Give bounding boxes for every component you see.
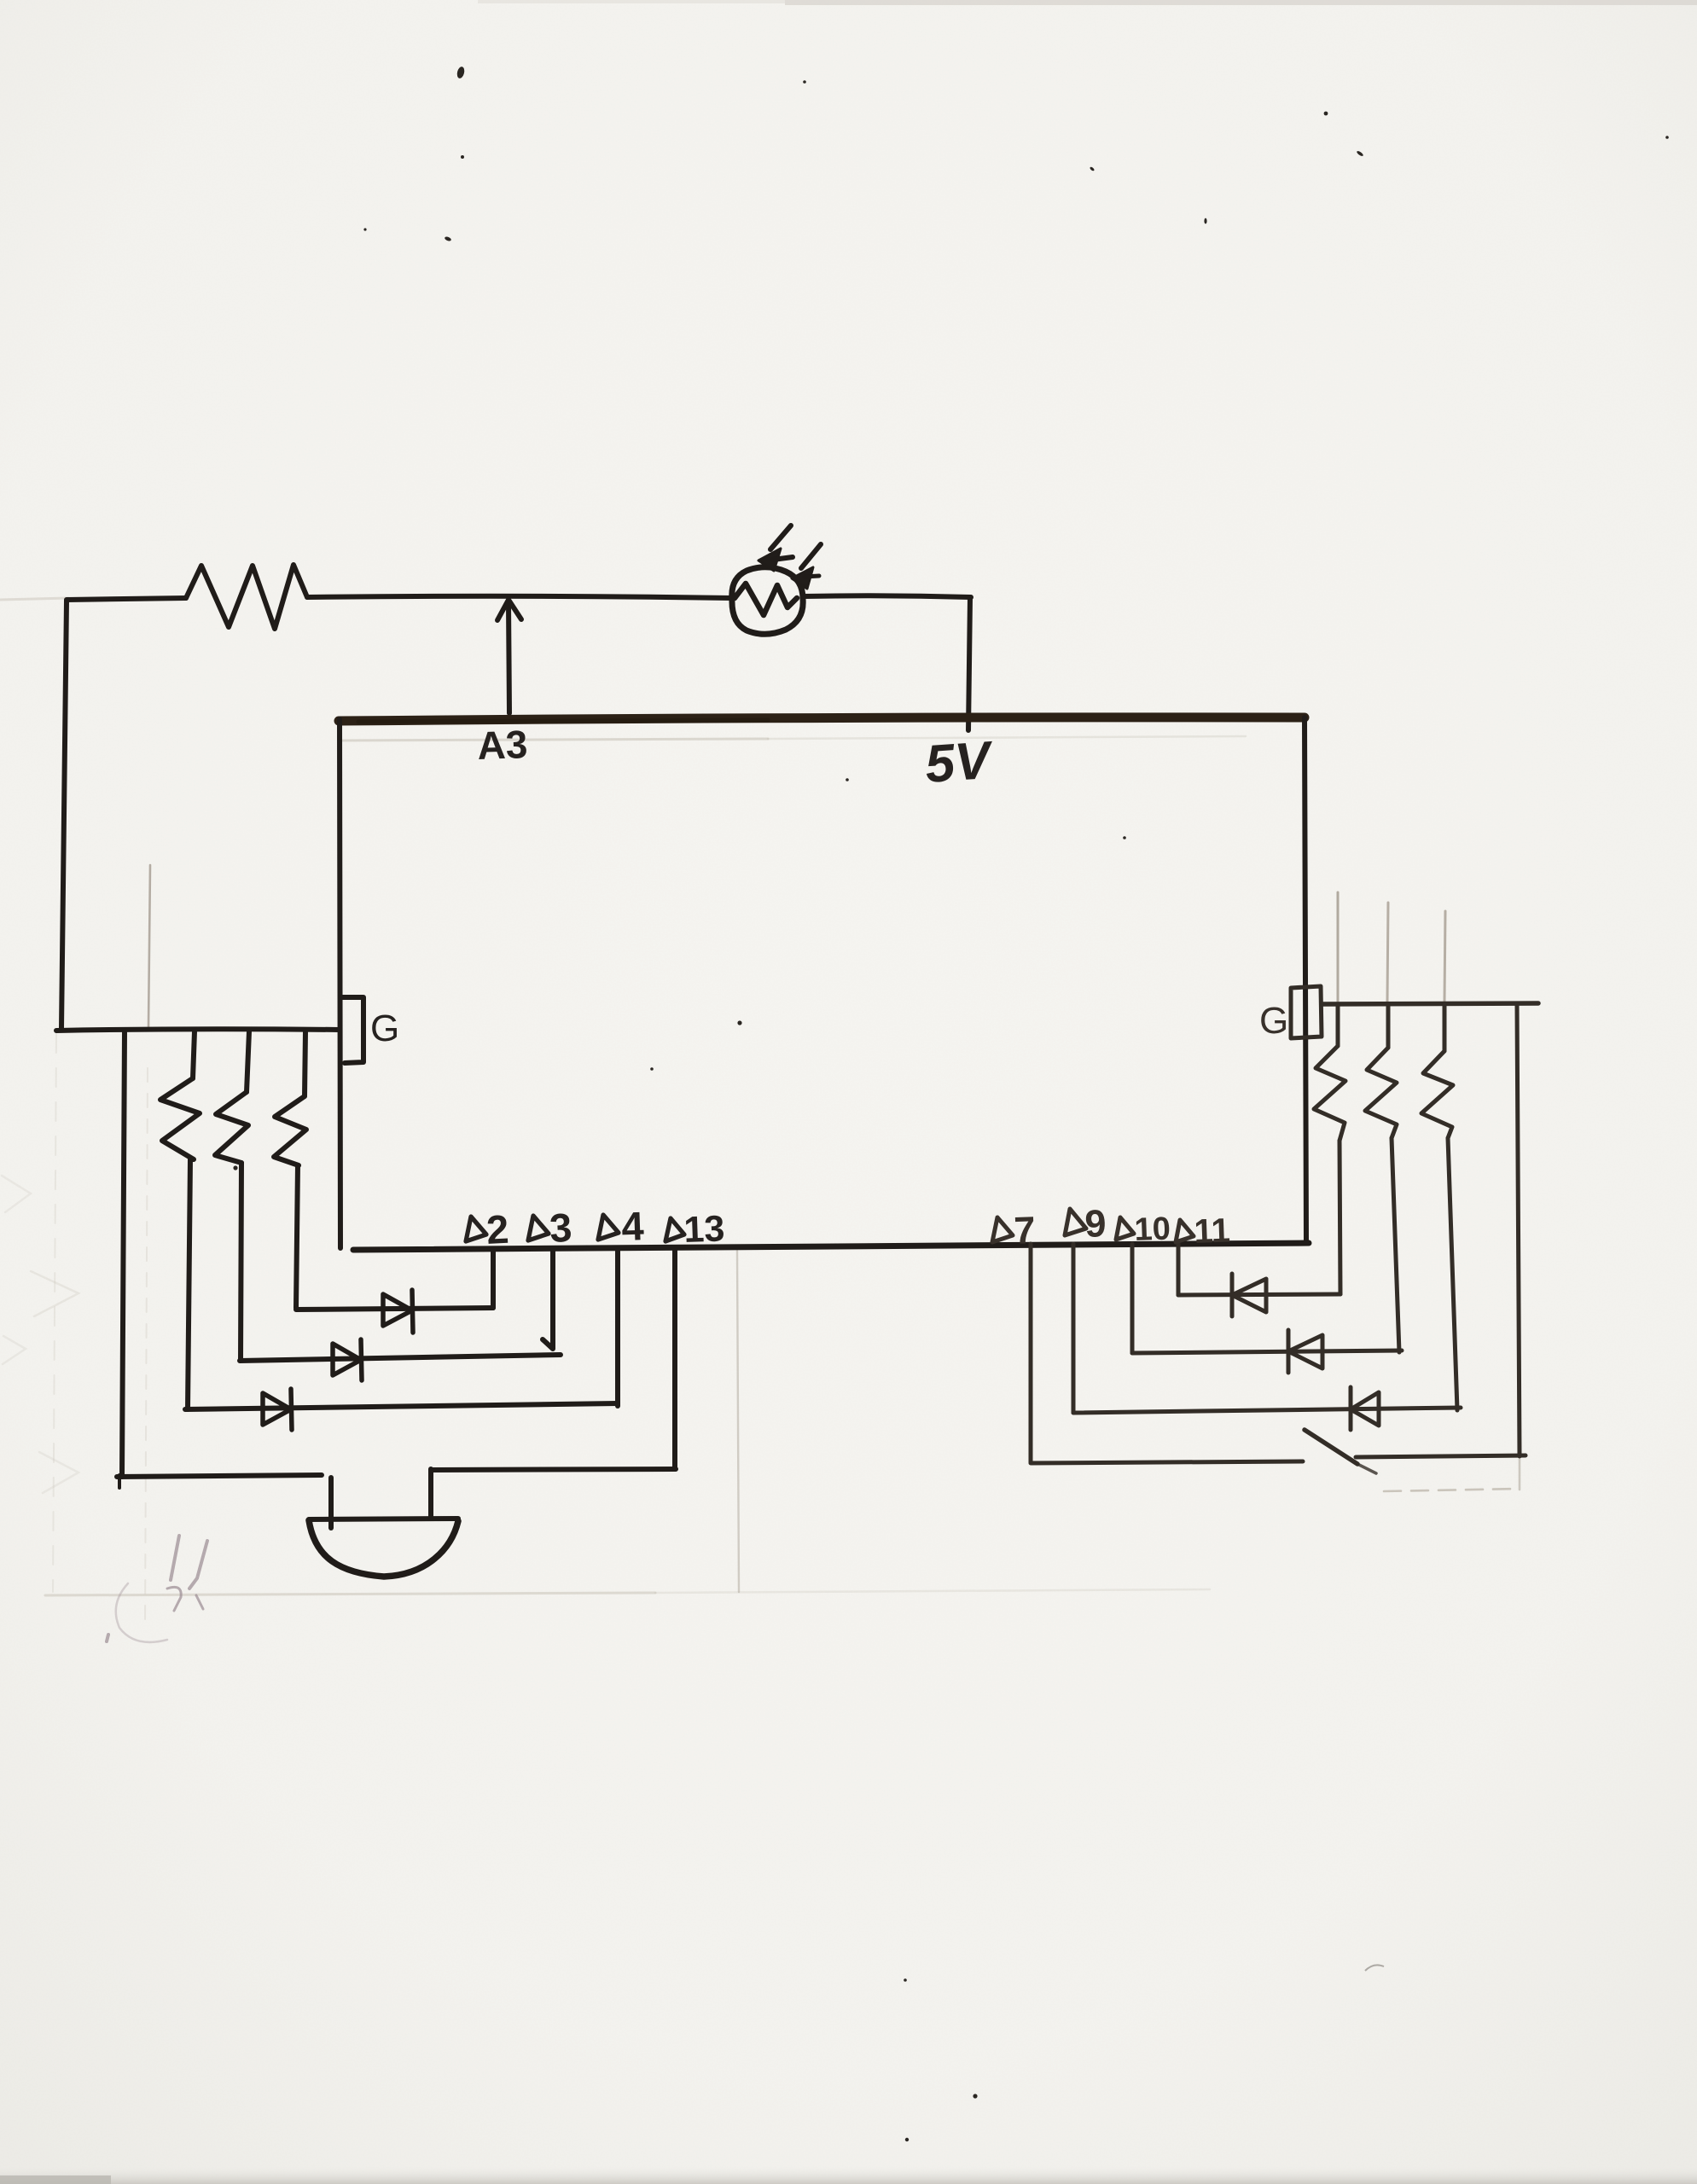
svg-text:5V: 5V	[923, 731, 996, 794]
svg-text:G: G	[370, 1008, 399, 1049]
svg-text:4: 4	[620, 1203, 644, 1249]
svg-text:13: 13	[683, 1208, 725, 1251]
svg-text:9: 9	[1084, 1201, 1107, 1246]
svg-text:11: 11	[1194, 1212, 1231, 1251]
svg-text:7: 7	[1014, 1208, 1037, 1252]
svg-text:G: G	[1259, 1000, 1288, 1042]
svg-text:3: 3	[549, 1205, 573, 1251]
svg-text:A3: A3	[477, 722, 529, 768]
svg-text:2: 2	[485, 1206, 510, 1252]
svg-text:10: 10	[1134, 1211, 1171, 1248]
